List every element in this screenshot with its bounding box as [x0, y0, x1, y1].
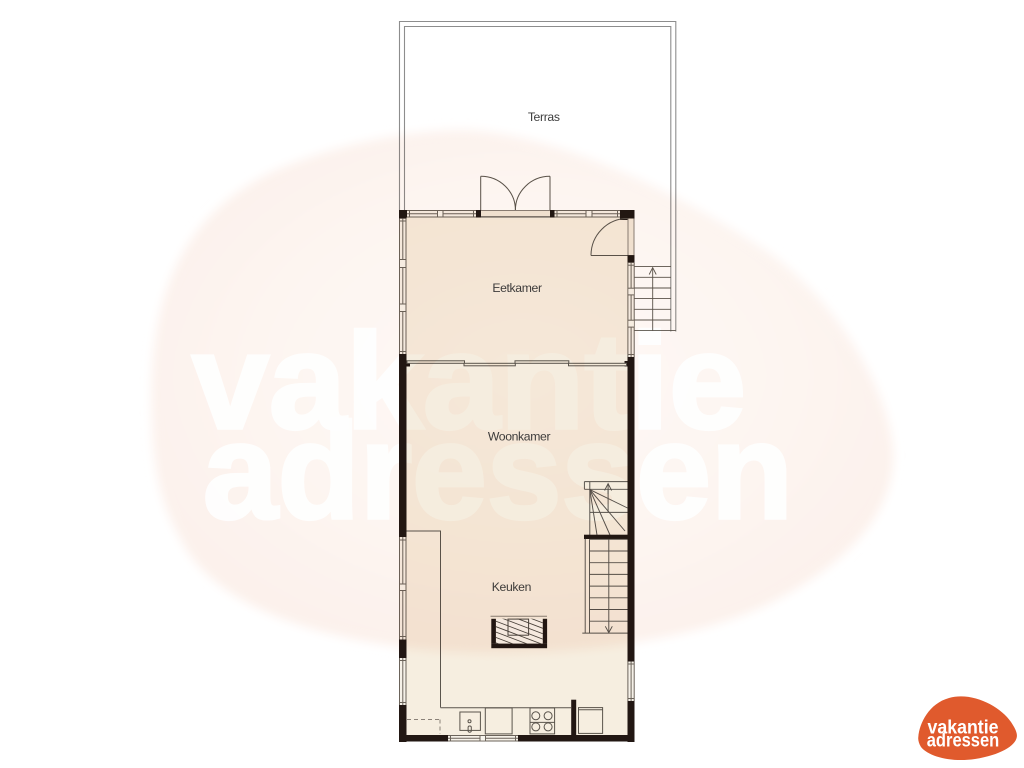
svg-text:Terras: Terras [528, 110, 560, 124]
svg-text:adressen: adressen [927, 730, 1000, 752]
svg-text:adressen: adressen [203, 395, 793, 547]
